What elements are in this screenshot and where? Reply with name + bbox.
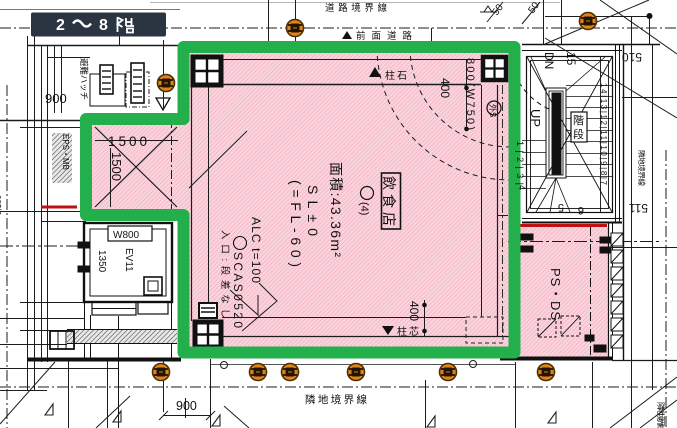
svg-text:PS・DS: PS・DS	[548, 268, 563, 320]
svg-text:900: 900	[45, 91, 67, 106]
svg-text:W800: W800	[113, 230, 140, 241]
svg-text:400: 400	[438, 78, 452, 98]
svg-text:避難ハッチ: 避難ハッチ	[79, 58, 89, 100]
svg-text:EPS・MB: EPS・MB	[61, 134, 70, 170]
svg-text:UP: UP	[528, 109, 543, 127]
svg-text:511: 511	[629, 201, 648, 215]
svg-text:800(W750): 800(W750)	[464, 58, 476, 130]
svg-text:400: 400	[407, 301, 421, 321]
svg-text:1500: 1500	[109, 152, 124, 181]
svg-text:8: 8	[99, 17, 108, 34]
svg-text:900: 900	[176, 399, 197, 413]
svg-text:5: 5	[558, 201, 564, 213]
svg-text:EV11: EV11	[123, 248, 134, 272]
svg-text:510: 510	[622, 50, 642, 64]
svg-text:隣地境界線: 隣地境界線	[656, 402, 666, 428]
svg-text:階: 階	[573, 113, 584, 127]
svg-text:9,100: 9,100	[0, 194, 3, 215]
svg-text:隣地境界線: 隣地境界線	[305, 393, 368, 406]
svg-text:4: 4	[517, 185, 527, 190]
svg-text:隣地境界線: 隣地境界線	[637, 150, 647, 187]
svg-text:段: 段	[573, 127, 584, 141]
svg-text:(4): (4)	[358, 202, 370, 215]
svg-text:15: 15	[564, 52, 578, 66]
svg-text:DN: DN	[542, 52, 556, 69]
svg-text:飲食店: 飲食店	[381, 176, 397, 226]
svg-text:6: 6	[578, 204, 584, 216]
svg-text:ALC t=100: ALC t=100	[249, 217, 263, 283]
svg-text:道路境界線: 道路境界線	[325, 2, 387, 14]
svg-text:2: 2	[56, 17, 65, 34]
svg-text:SCAS0520: SCAS0520	[231, 252, 245, 328]
svg-text:外S: 外S	[488, 104, 498, 117]
svg-text:1350: 1350	[96, 250, 107, 273]
